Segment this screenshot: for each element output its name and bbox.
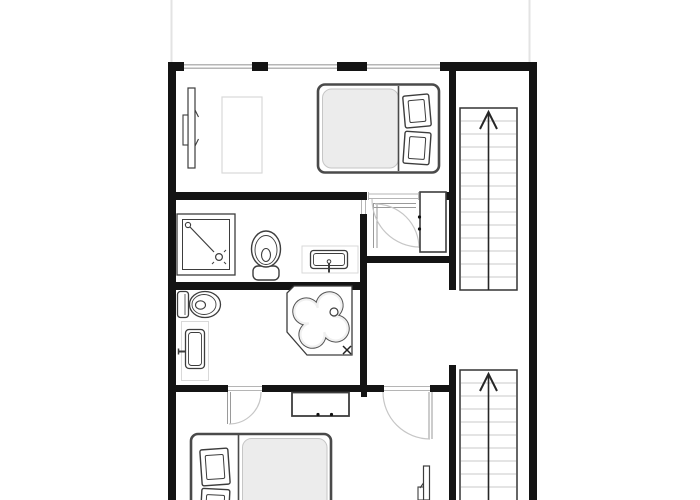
- left-outer-wall: [168, 62, 176, 500]
- staircase-lower: [460, 370, 517, 500]
- bed-mattress: [243, 439, 328, 500]
- toilet-2: [178, 292, 221, 318]
- rug: [222, 97, 262, 173]
- bed-bottom: [191, 434, 331, 500]
- dresser-knob-1: [316, 413, 319, 416]
- pillow-2: [200, 488, 230, 500]
- pillow-1: [200, 448, 230, 486]
- floor-plan-drawing: [0, 0, 700, 500]
- toilet-tank: [253, 266, 279, 280]
- floor-plan-page: [0, 0, 700, 500]
- pillow-2: [403, 131, 431, 165]
- right-outer-wall: [529, 62, 537, 500]
- dresser-knob-2: [330, 413, 333, 416]
- toilet-1: [252, 231, 281, 280]
- cabinet-handle-2: [418, 227, 421, 230]
- shower-stall: [177, 214, 235, 275]
- vestibule-south-wall: [367, 256, 449, 263]
- staircase-upper: [460, 108, 517, 290]
- cabinet-handle-1: [418, 215, 421, 218]
- bed-top: [318, 85, 439, 173]
- upper-stairwell-wall: [449, 62, 456, 290]
- top-wall-segment-2: [252, 62, 268, 71]
- dresser: [292, 393, 349, 417]
- tv-panel: [424, 466, 430, 500]
- tv-bracket: [418, 487, 424, 500]
- lower-stairwell-wall: [449, 365, 456, 500]
- tv-bracket: [183, 115, 188, 145]
- top-wall-segment-3: [337, 62, 367, 71]
- pillow-1: [403, 94, 432, 128]
- bedroom2-north-wall-b: [262, 385, 384, 392]
- bathroom-east-wall: [360, 214, 367, 385]
- bed-mattress: [323, 89, 399, 168]
- vanity-sink-2: [179, 322, 209, 381]
- tall-cabinet: [418, 192, 446, 252]
- bedroom1-south-wall: [168, 192, 367, 200]
- wall-stub: [361, 392, 367, 397]
- bedroom2-north-wall-a: [168, 385, 228, 392]
- tub-basin-inner: [294, 293, 347, 346]
- vanity-sink-1: [302, 246, 358, 273]
- tv-panel: [188, 88, 195, 168]
- toilet-tank: [178, 292, 189, 318]
